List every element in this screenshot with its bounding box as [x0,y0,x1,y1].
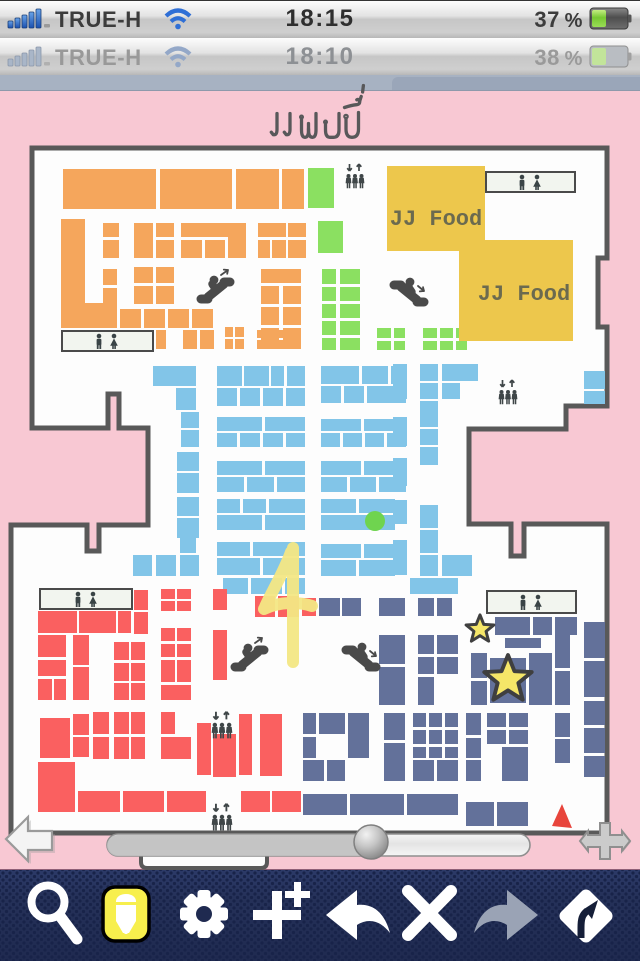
svg-text:JJ Food: JJ Food [478,282,570,307]
svg-text:JJ Food: JJ Food [390,207,482,232]
